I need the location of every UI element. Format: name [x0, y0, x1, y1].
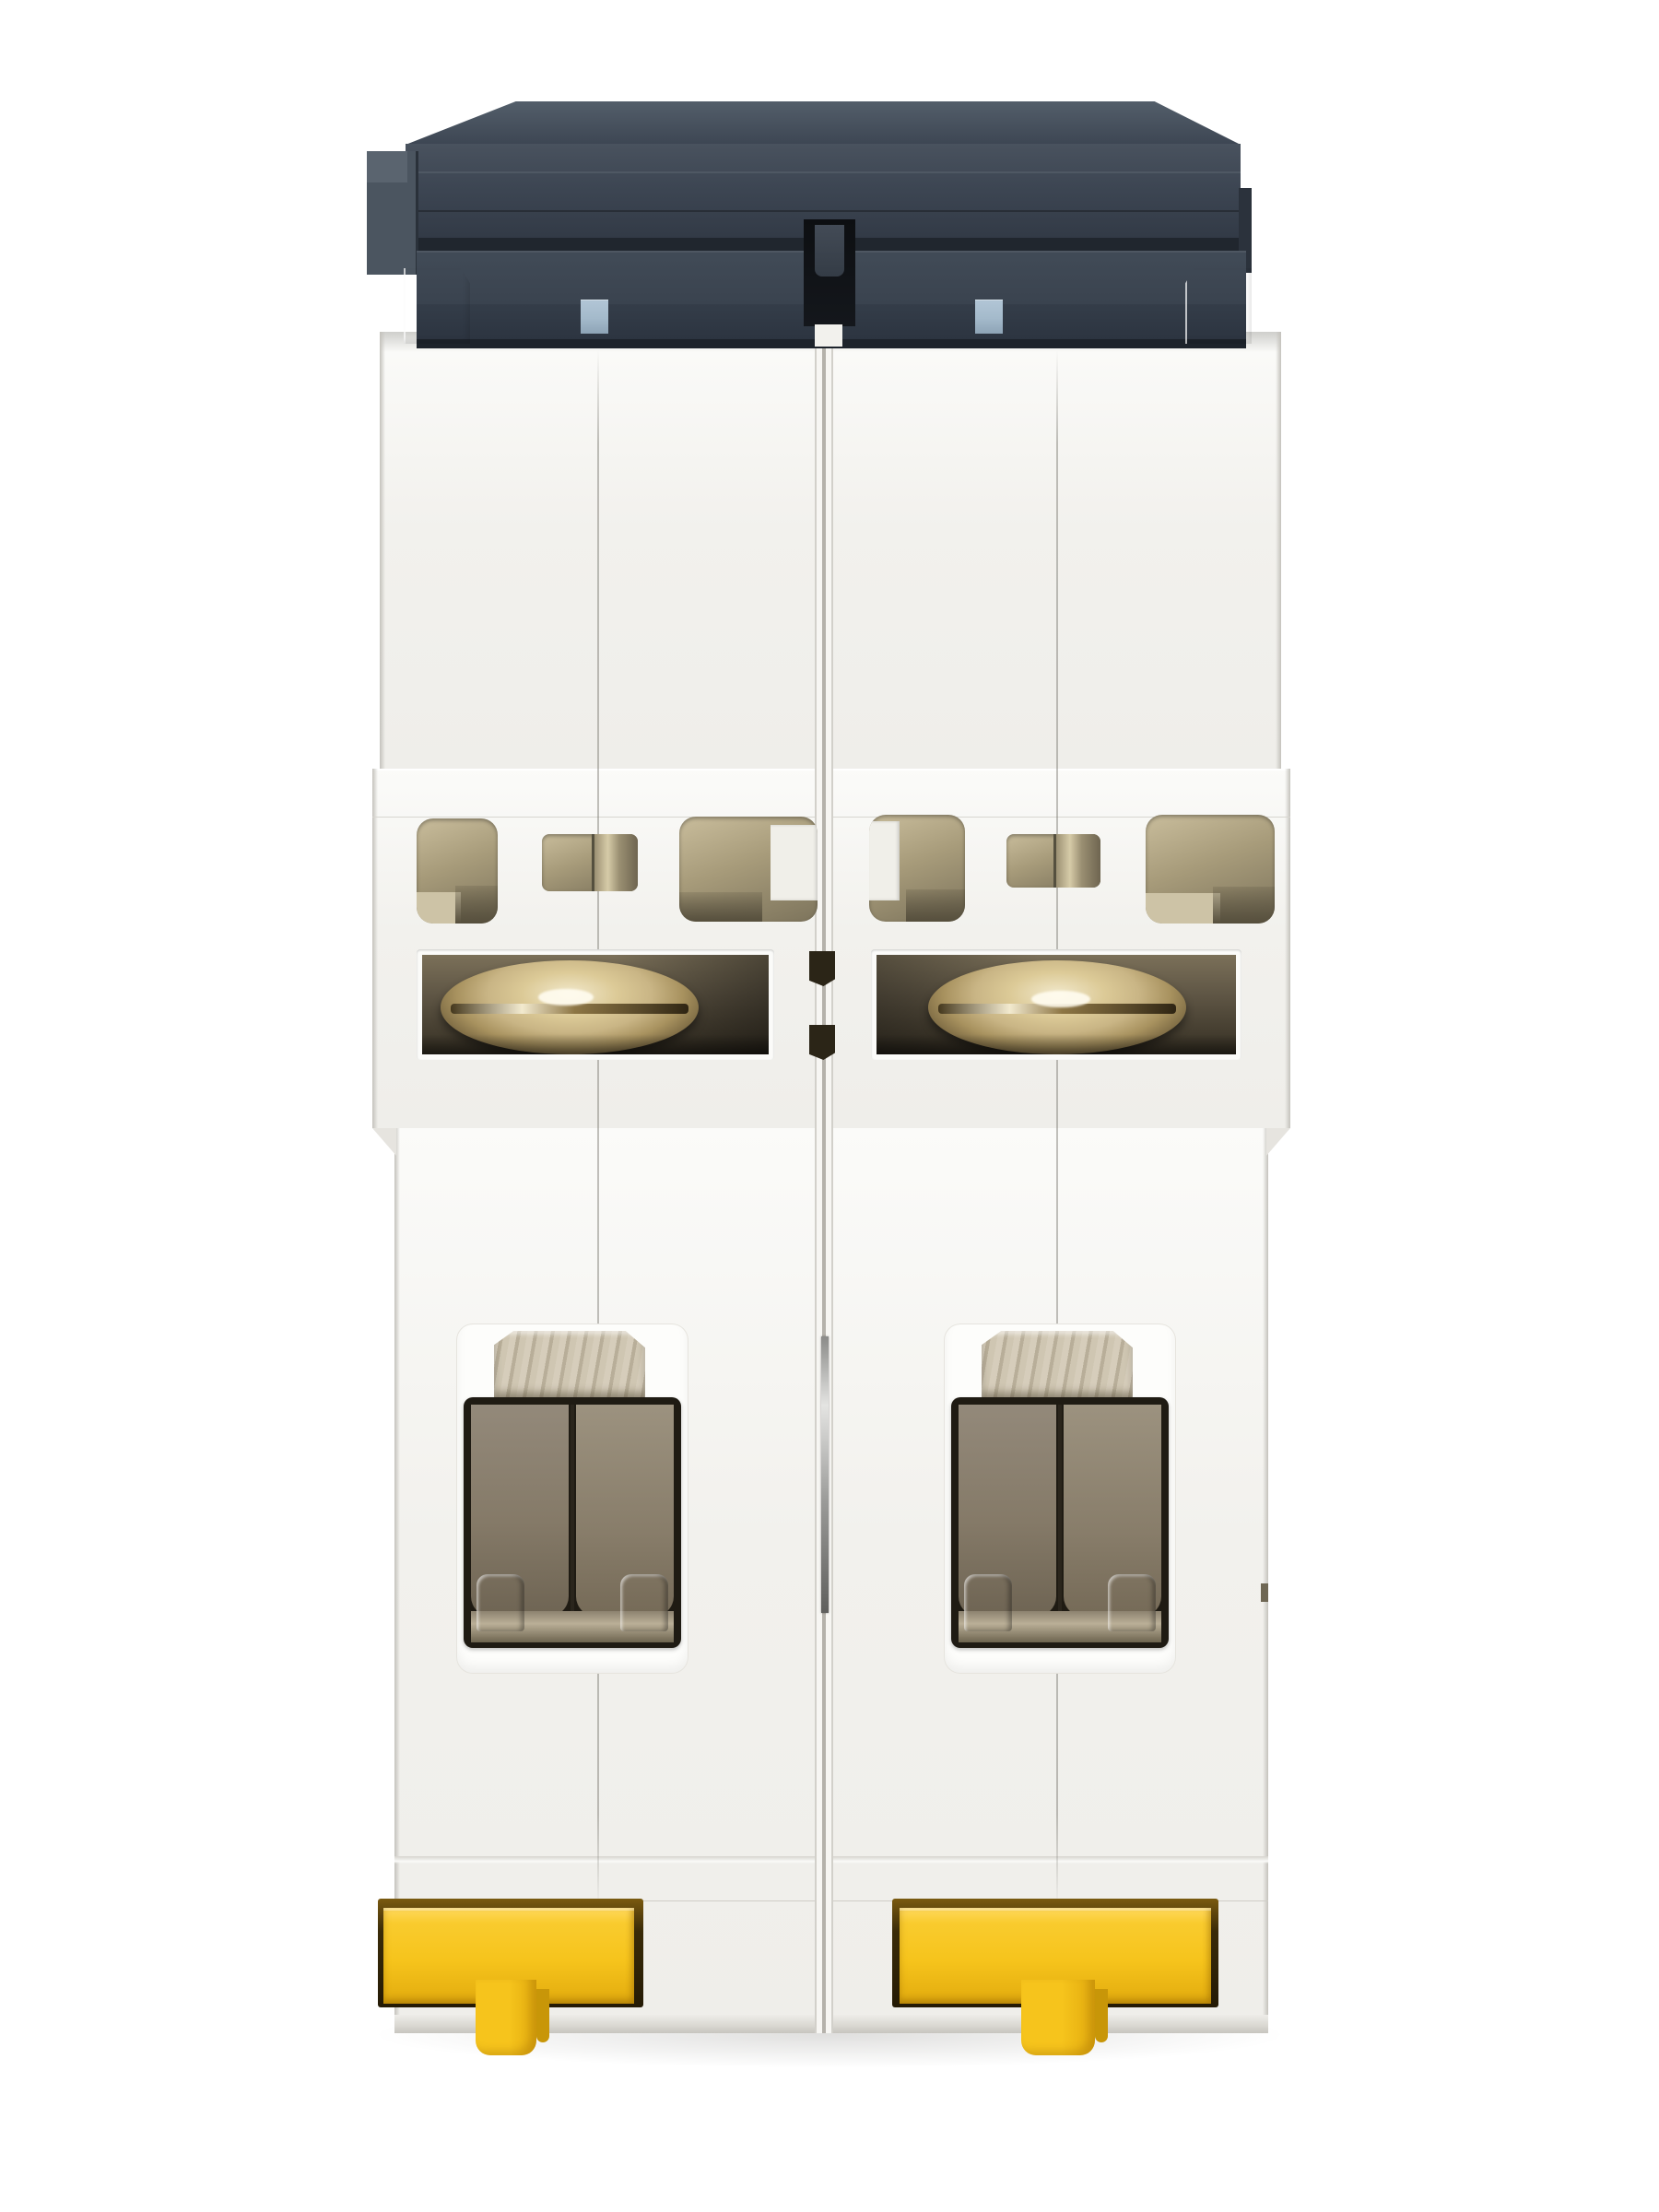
terminal-sill	[959, 1611, 1161, 1642]
screw-window-bottom-shadow	[877, 1034, 1236, 1054]
module-seam-left	[597, 350, 599, 1908]
toggle-indicator-right	[975, 300, 1003, 334]
right-edge-notch	[1261, 1583, 1268, 1602]
cap-shadow-line	[406, 210, 1241, 212]
upper-housing-right-edge	[1276, 332, 1281, 769]
clamp-hook-left	[477, 1574, 524, 1631]
vent-inner-shadow	[455, 886, 498, 924]
vented-band-left-edge	[372, 769, 378, 1128]
cavity-divider	[1058, 1405, 1062, 1620]
vent-inner-ledge	[417, 892, 461, 924]
screw-window-bottom-shadow	[422, 1034, 769, 1054]
vent-left-inner	[679, 817, 818, 922]
vent-left-small	[542, 834, 638, 891]
toggle-gap	[804, 219, 855, 326]
mid-step-chamfer-left	[372, 1128, 396, 1156]
terminal-clamp-plate	[982, 1331, 1133, 1401]
toggle-cap-left-endcap	[367, 151, 418, 275]
screw-barrel-reflection	[1053, 834, 1100, 888]
product-photo-canvas	[0, 0, 1659, 2212]
clamp-hook-right	[1108, 1574, 1156, 1631]
center-latch-tab-upper	[809, 951, 835, 986]
corner-post-right	[1185, 268, 1252, 344]
mid-step-chamfer-right	[1266, 1128, 1290, 1156]
center-rivet-pin	[821, 1336, 829, 1613]
screw-window-right	[871, 949, 1241, 1060]
vent-right-inner	[869, 815, 965, 922]
screw-glint	[1031, 991, 1090, 1007]
clamp-hook-right	[620, 1574, 668, 1631]
upper-housing-left-edge	[380, 332, 385, 769]
lower-housing-right-edge	[1263, 1128, 1268, 2033]
center-latch-tab-lower	[809, 1025, 835, 1060]
lower-housing-left-edge	[394, 1128, 400, 2033]
din-clip-tab-shadow-left	[536, 1989, 549, 2042]
wire-terminal-right	[944, 1324, 1176, 1674]
vent-right-small	[1006, 834, 1100, 888]
wire-terminal-left	[456, 1324, 688, 1674]
terminal-cavity	[951, 1397, 1169, 1648]
vent-divider	[592, 834, 594, 891]
vented-band-right-edge	[1285, 769, 1290, 1128]
toggle-gap-white-notch	[815, 324, 842, 347]
clamp-hook-left	[964, 1574, 1012, 1631]
terminal-sill	[471, 1611, 674, 1642]
vent-right-outer	[1146, 815, 1275, 924]
screw-window-left	[417, 949, 774, 1060]
cap-highlight-line	[406, 171, 1241, 173]
vent-inner-ledge	[1146, 893, 1220, 924]
center-seam-channel	[815, 339, 833, 2033]
screw-window-interior	[422, 955, 769, 1054]
screw-window-interior	[877, 955, 1236, 1054]
din-clip-tab-right	[1021, 1980, 1095, 2055]
toggle-indicator-left	[581, 300, 608, 334]
vent-inner-shadow	[679, 892, 762, 922]
endcap-notch	[367, 151, 407, 182]
module-seam-right	[1056, 350, 1058, 1908]
toggle-cap-top-face	[406, 101, 1241, 145]
vent-divider	[1053, 834, 1056, 888]
din-clip-tab-shadow-right	[1095, 1989, 1108, 2042]
corner-post-left	[404, 268, 470, 344]
vent-white-block	[869, 821, 900, 900]
vent-inner-shadow	[1213, 887, 1275, 924]
terminal-cavity	[464, 1397, 681, 1648]
vent-inner-shadow	[906, 889, 965, 922]
vent-white-block	[771, 825, 818, 900]
screw-glint	[538, 989, 594, 1006]
cavity-divider	[571, 1405, 574, 1620]
screw-barrel-reflection	[592, 834, 638, 891]
toggle-gap-divider-tab	[815, 225, 844, 276]
terminal-clamp-plate	[494, 1331, 645, 1401]
vent-left-outer	[417, 818, 498, 924]
din-clip-tab-left	[476, 1980, 536, 2055]
